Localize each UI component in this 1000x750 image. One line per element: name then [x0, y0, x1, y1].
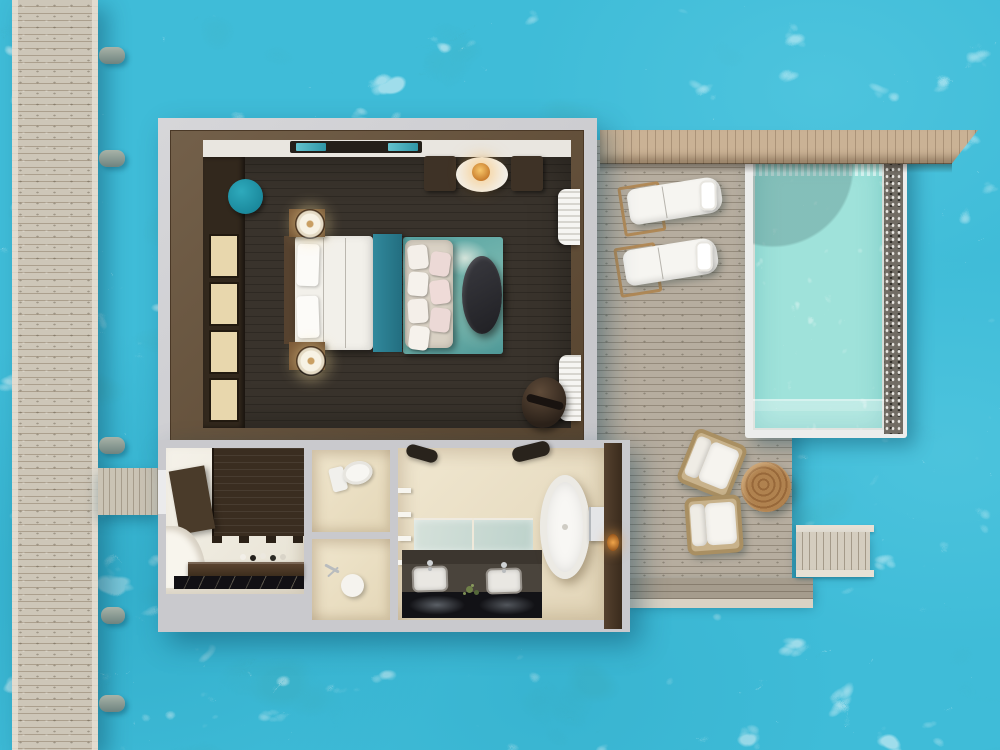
- tv-screen-glint: [296, 143, 326, 151]
- bench-pillow: [428, 251, 451, 278]
- roof-shadow: [600, 163, 952, 173]
- sink-faucet: [427, 560, 433, 566]
- umbrella-shadow: [753, 158, 865, 266]
- shower-stool: [341, 574, 364, 597]
- jetty-pole: [99, 150, 125, 167]
- wooden-jetty: [12, 0, 98, 750]
- bench-pillow: [407, 244, 429, 270]
- wardrobe-door: [209, 234, 239, 278]
- curtain: [558, 189, 580, 245]
- chair-weave: [428, 159, 452, 188]
- amenity-bottles: [240, 554, 246, 560]
- rolled-towel: [695, 241, 713, 271]
- bench-pillow: [408, 325, 431, 351]
- bench-pillow: [407, 298, 429, 323]
- wardrobe-door: [209, 378, 239, 422]
- deck-lower-step: [629, 578, 813, 601]
- black-marble-runner: [174, 576, 304, 589]
- mirror-divider: [472, 518, 474, 551]
- wall-shelf: [398, 536, 411, 541]
- bed-pillow: [296, 296, 319, 339]
- steps-rail: [796, 525, 874, 532]
- vanity-sink: [486, 567, 523, 594]
- bed-pillow: [296, 244, 319, 287]
- bathtub-drain: [562, 524, 568, 530]
- entry-walkway: [98, 468, 158, 515]
- pool-entry-steps: [753, 399, 884, 430]
- jetty-pole: [99, 695, 125, 712]
- lounge-armchair: [424, 156, 456, 191]
- wardrobe-door: [209, 282, 239, 326]
- wall-shelf: [398, 488, 411, 493]
- wall-lamp: [607, 534, 619, 551]
- jetty-pole: [99, 47, 125, 64]
- sea-access-steps: [796, 532, 870, 570]
- dressing-slat-wardrobe: [212, 448, 304, 536]
- coffee-table-oval: [462, 256, 502, 334]
- bench-pillow: [429, 307, 451, 333]
- vanity-marble-front: [402, 592, 542, 618]
- rolled-towel: [699, 180, 717, 210]
- table-lamp: [295, 209, 325, 239]
- duvet-fold: [345, 238, 346, 348]
- jetty-pole: [101, 607, 125, 624]
- entry-door: [158, 470, 166, 514]
- steps-rail: [796, 570, 874, 577]
- bench-pillow: [407, 271, 429, 297]
- tub-wall-fixture: [589, 507, 605, 541]
- wardrobe-door: [209, 330, 239, 374]
- roof-overhang: [600, 130, 978, 164]
- tv-screen-glint: [388, 143, 418, 151]
- round-wood-table: [741, 462, 791, 512]
- teal-bed-runner: [373, 234, 402, 352]
- lounge-armchair: [511, 156, 543, 191]
- deck-edge-plank: [629, 599, 813, 608]
- table-lamp: [296, 346, 326, 376]
- chair-weave: [515, 159, 539, 188]
- jetty-pole: [99, 437, 125, 454]
- vanity-backsplash: [402, 550, 542, 564]
- bench-pillow: [429, 279, 452, 305]
- overwater-villa-floorplan: [0, 0, 1000, 750]
- dressing-slat-gaps: [212, 536, 304, 543]
- counter-greenery: [466, 586, 473, 593]
- wall-shelf: [398, 512, 411, 517]
- vanity-sink: [412, 565, 449, 592]
- sink-faucet: [501, 562, 507, 568]
- chair-seat-cushion: [704, 502, 737, 546]
- patio-armchair: [684, 494, 744, 556]
- teal-pouf: [228, 179, 263, 214]
- pendant-lamp: [472, 163, 490, 181]
- pebble-border: [884, 152, 903, 434]
- duvet-fold: [323, 238, 324, 348]
